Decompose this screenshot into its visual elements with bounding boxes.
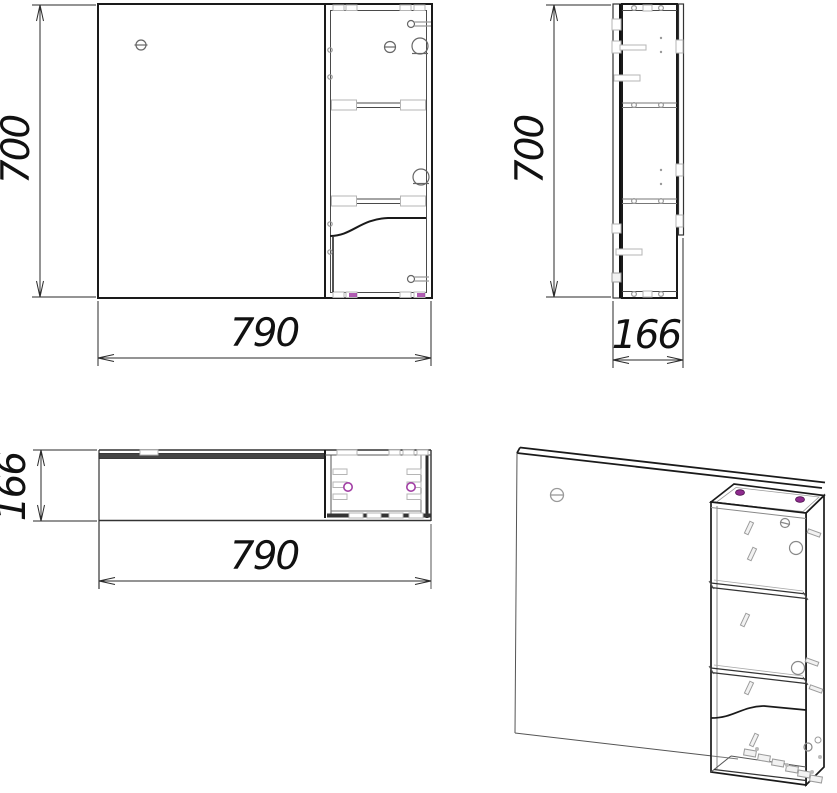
technical-drawing: 700 — [0, 0, 837, 793]
screw-hole-magenta — [407, 483, 415, 491]
front-panel-edge-side — [679, 4, 684, 235]
drawing-canvas: 700 — [0, 0, 837, 793]
dimension-label-side-depth: 166 — [612, 313, 682, 358]
iso-view — [515, 448, 825, 786]
mirror-panel-front — [98, 4, 325, 298]
front-height-dimension: 700 — [0, 5, 96, 297]
assembly-screw-magenta — [736, 490, 745, 496]
side-view: 700 — [508, 4, 684, 368]
plan-width-dimension: 790 — [99, 534, 431, 585]
dimension-label-plan-width: 790 — [230, 534, 299, 579]
mirror-edge-plan — [99, 454, 325, 459]
dimension-label-front-width: 790 — [230, 311, 299, 356]
side-height-dimension: 700 — [508, 5, 611, 297]
plan-fasteners — [140, 450, 428, 518]
dimension-label-plan-depth: 166 — [0, 452, 35, 522]
front-view: 700 — [0, 4, 432, 366]
dimension-label-side-height: 700 — [508, 116, 553, 185]
cabinet-body-iso — [709, 484, 824, 785]
assembly-screw-mark — [417, 293, 425, 297]
assembly-screw-magenta — [796, 497, 805, 503]
screw-hole-magenta — [344, 483, 352, 491]
cabinet-body-side — [612, 4, 684, 298]
plan-view: 166 — [0, 450, 431, 589]
cabinet-front-face — [711, 502, 806, 785]
dimension-label-front-height: 700 — [0, 116, 39, 185]
front-width-dimension: 790 — [98, 301, 431, 366]
plan-depth-dimension: 166 — [0, 450, 97, 521]
cabinet-body-front — [325, 4, 432, 298]
assembly-screw-mark — [349, 293, 357, 297]
